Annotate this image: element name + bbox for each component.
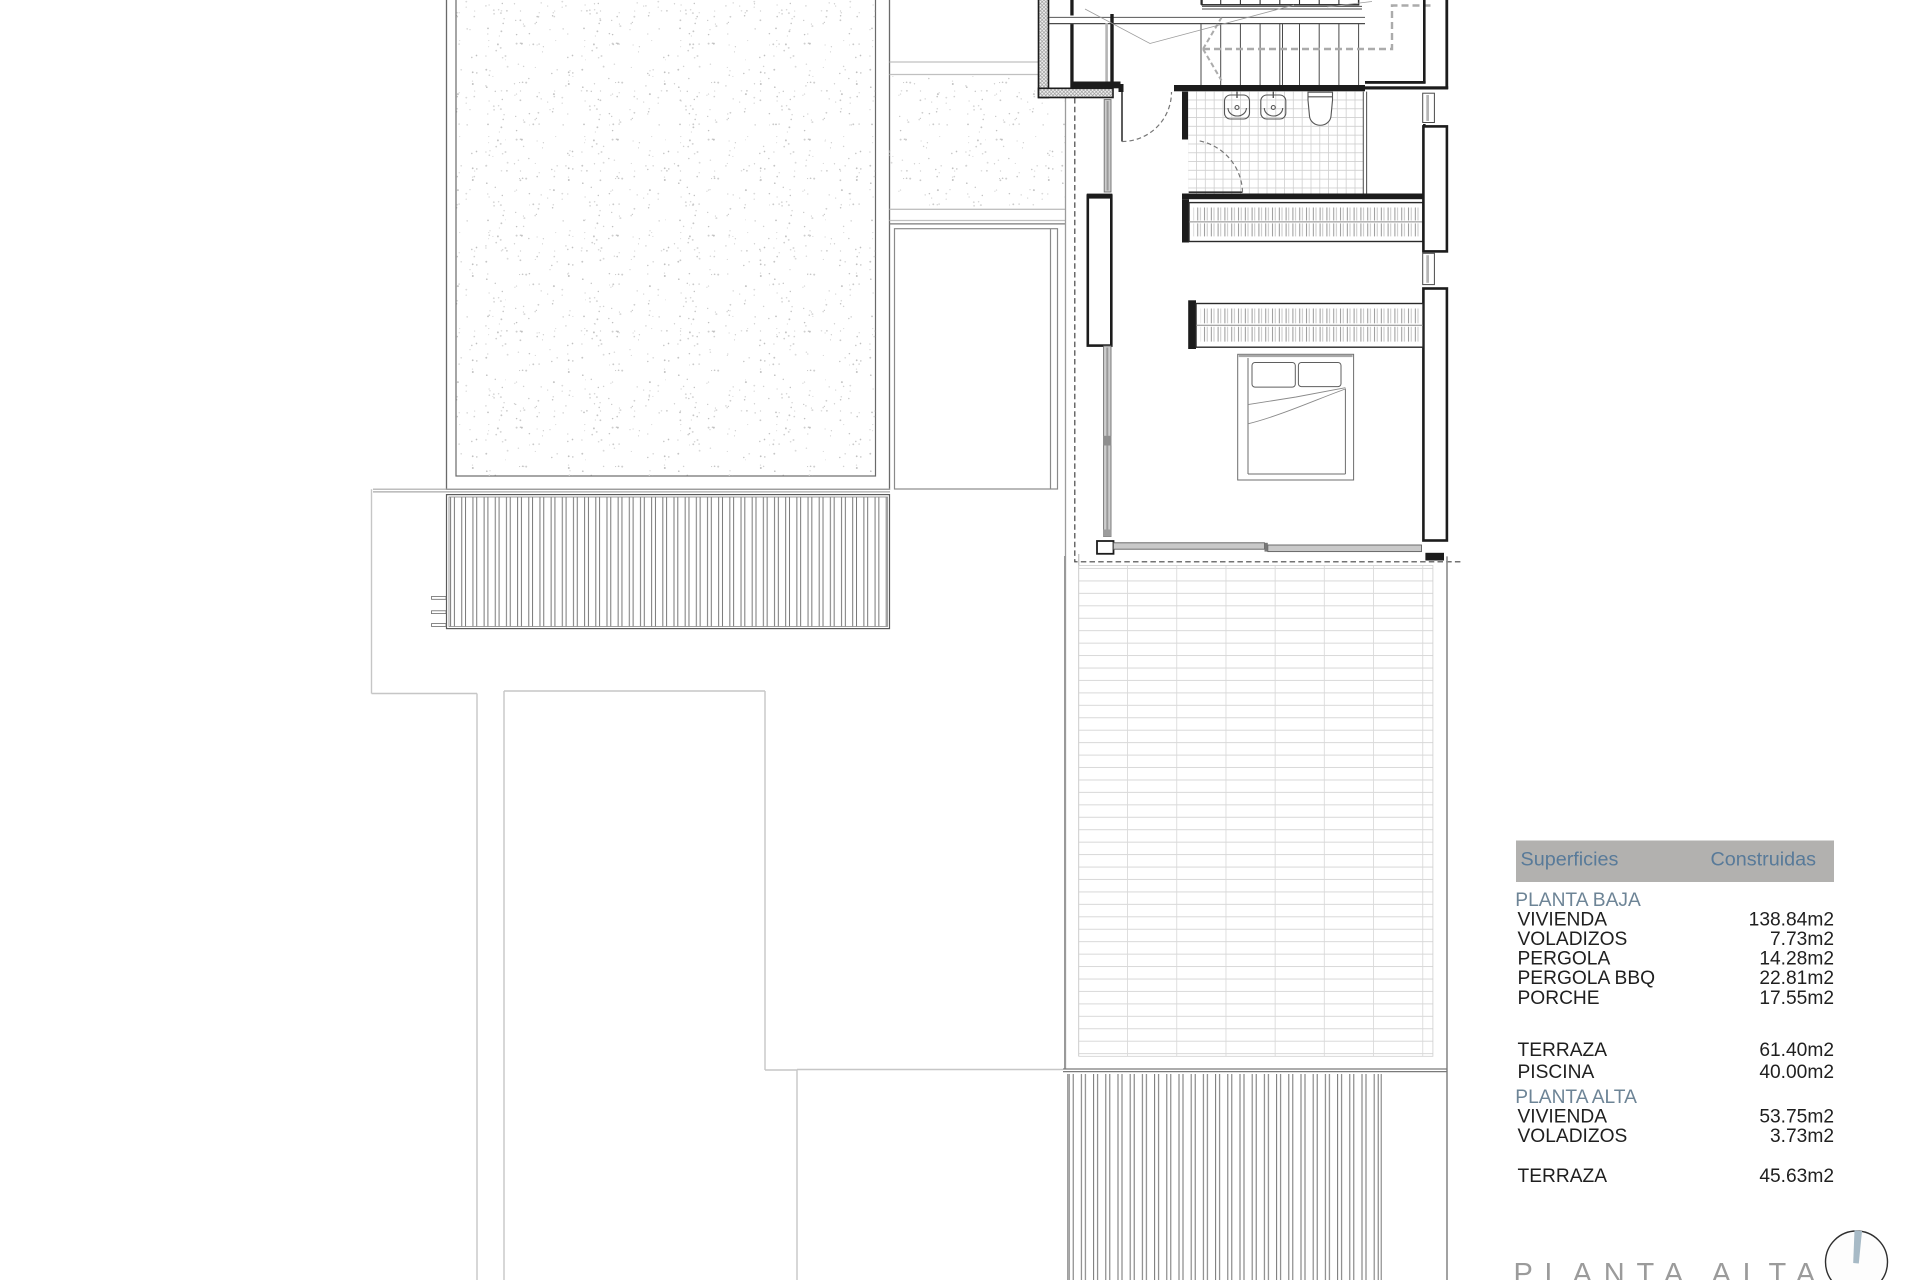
svg-text:PLANTA ALTA: PLANTA ALTA bbox=[1515, 1087, 1637, 1108]
svg-text:14.28m2: 14.28m2 bbox=[1759, 949, 1834, 970]
svg-text:7.73m2: 7.73m2 bbox=[1770, 929, 1834, 950]
svg-text:VOLADIZOS: VOLADIZOS bbox=[1518, 929, 1628, 950]
svg-text:45.63m2: 45.63m2 bbox=[1759, 1166, 1834, 1187]
svg-text:PORCHE: PORCHE bbox=[1518, 988, 1600, 1009]
svg-text:VIVIENDA: VIVIENDA bbox=[1518, 1107, 1608, 1128]
svg-text:PISCINA: PISCINA bbox=[1518, 1062, 1595, 1083]
svg-text:17.55m2: 17.55m2 bbox=[1759, 988, 1834, 1009]
svg-text:138.84m2: 138.84m2 bbox=[1749, 910, 1834, 931]
svg-text:Superficies: Superficies bbox=[1521, 849, 1619, 871]
svg-text:40.00m2: 40.00m2 bbox=[1759, 1062, 1834, 1083]
svg-text:PLANTA BAJA: PLANTA BAJA bbox=[1515, 890, 1641, 911]
svg-text:VIVIENDA: VIVIENDA bbox=[1518, 910, 1608, 931]
svg-text:PLANTA ALTA: PLANTA ALTA bbox=[1514, 1258, 1828, 1280]
svg-text:PERGOLA: PERGOLA bbox=[1518, 949, 1611, 970]
svg-text:PERGOLA BBQ: PERGOLA BBQ bbox=[1518, 968, 1656, 989]
svg-text:TERRAZA: TERRAZA bbox=[1518, 1166, 1608, 1187]
svg-text:Construidas: Construidas bbox=[1710, 849, 1816, 871]
svg-text:61.40m2: 61.40m2 bbox=[1759, 1040, 1834, 1061]
svg-text:TERRAZA: TERRAZA bbox=[1518, 1040, 1608, 1061]
svg-text:VOLADIZOS: VOLADIZOS bbox=[1518, 1126, 1628, 1147]
svg-text:53.75m2: 53.75m2 bbox=[1759, 1107, 1834, 1128]
svg-text:22.81m2: 22.81m2 bbox=[1759, 968, 1834, 989]
svg-text:3.73m2: 3.73m2 bbox=[1770, 1126, 1834, 1147]
